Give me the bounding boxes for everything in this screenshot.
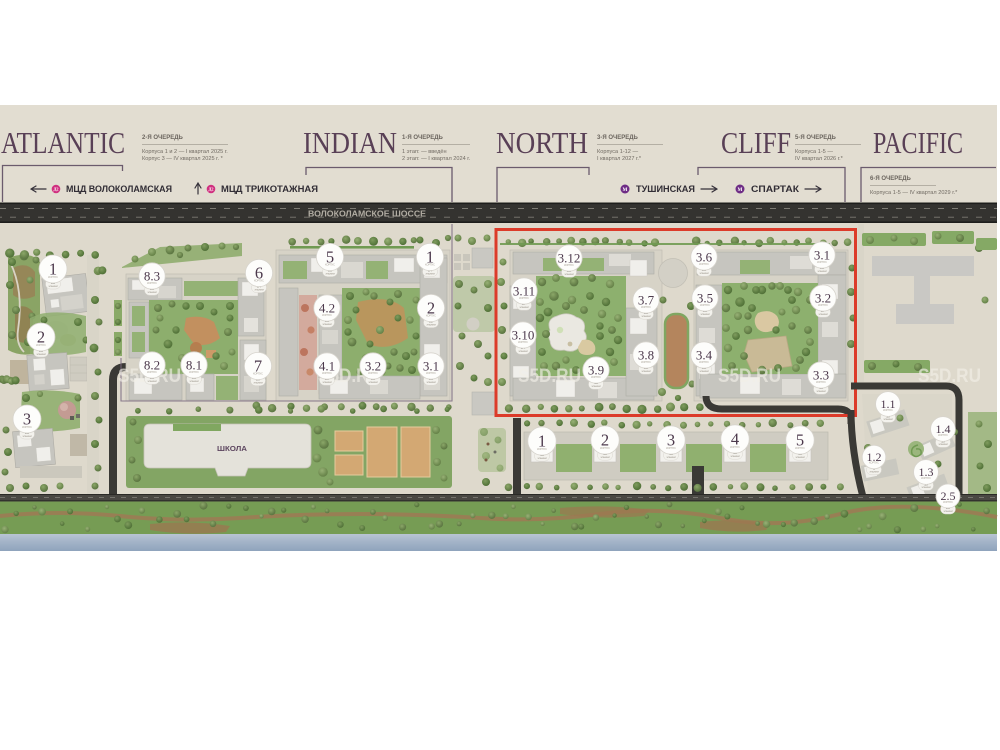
svg-text:КОРПУС: КОРПУС — [48, 276, 58, 279]
svg-text:ЭТАЖЕЙ: ЭТАЖЕЙ — [641, 370, 651, 373]
svg-text:КОРПУС: КОРПУС — [938, 434, 948, 437]
svg-text:ЭТАЖЕЙ: ЭТАЖЕЙ — [938, 443, 948, 446]
svg-text:S5D.RU: S5D.RU — [518, 365, 581, 387]
svg-text:ATLANTIC: ATLANTIC — [1, 125, 125, 160]
svg-text:S5D.RU: S5D.RU — [918, 365, 981, 387]
svg-text:СПАРТАК: СПАРТАК — [751, 184, 799, 194]
svg-text:КОРПУС: КОРПУС — [253, 372, 263, 375]
svg-text:МЦД ТРИКОТАЖНАЯ: МЦД ТРИКОТАЖНАЯ — [221, 184, 318, 194]
svg-text:ЭТАЖЕЙ: ЭТАЖЕЙ — [666, 456, 676, 459]
svg-text:PACIFIC: PACIFIC — [873, 125, 963, 160]
svg-text:ЭТАЖЕЙ: ЭТАЖЕЙ — [147, 291, 157, 294]
svg-text:КОРПУС: КОРПУС — [641, 306, 651, 309]
svg-text:ТУШИНСКАЯ: ТУШИНСКАЯ — [636, 184, 695, 194]
svg-text:КОРПУС: КОРПУС — [564, 264, 574, 267]
svg-text:КОРПУС: КОРПУС — [730, 446, 740, 449]
svg-text:6-Я ОЧЕРЕДЬ: 6-Я ОЧЕРЕДЬ — [870, 176, 911, 182]
svg-text:ЭТАЖЕЙ: ЭТАЖЕЙ — [426, 323, 436, 326]
svg-text:ЭТАЖЕЙ: ЭТАЖЕЙ — [869, 471, 879, 474]
svg-text:IV квартал 2026 г.*: IV квартал 2026 г.* — [795, 156, 844, 162]
svg-text:КОРПУС: КОРПУС — [921, 477, 931, 480]
svg-text:КОРПУС: КОРПУС — [325, 263, 335, 266]
svg-text:КОРПУС: КОРПУС — [818, 304, 828, 307]
svg-text:ЭТАЖЕЙ: ЭТАЖЕЙ — [943, 510, 953, 513]
svg-text:Корпус 3 — IV квартал 2025 г.: Корпус 3 — IV квартал 2025 г. * — [142, 156, 224, 162]
svg-text:ЭТАЖЕЙ: ЭТАЖЕЙ — [325, 272, 335, 275]
svg-text:ЭТАЖЕЙ: ЭТАЖЕЙ — [591, 385, 601, 388]
svg-text:ЭТАЖЕЙ: ЭТАЖЕЙ — [699, 272, 709, 275]
svg-text:ЭТАЖЕЙ: ЭТАЖЕЙ — [921, 486, 931, 489]
svg-text:Корпуса 1 и 2 — I квартал 2025: Корпуса 1 и 2 — I квартал 2025 г. — [142, 149, 228, 155]
svg-text:ЭТАЖЕЙ: ЭТАЖЕЙ — [147, 380, 157, 383]
svg-text:NORTH: NORTH — [496, 125, 588, 160]
svg-text:ЭТАЖЕЙ: ЭТАЖЕЙ — [816, 390, 826, 393]
svg-text:КОРПУС: КОРПУС — [817, 261, 827, 264]
svg-text:МЦД ВОЛОКОЛАМСКАЯ: МЦД ВОЛОКОЛАМСКАЯ — [66, 184, 172, 194]
svg-text:INDIAN: INDIAN — [303, 125, 397, 160]
svg-text:КОРПУС: КОРПУС — [816, 381, 826, 384]
svg-text:КОРПУС: КОРПУС — [425, 263, 435, 266]
svg-text:ЭТАЖЕЙ: ЭТАЖЕЙ — [818, 313, 828, 316]
svg-text:ЭТАЖЕЙ: ЭТАЖЕЙ — [795, 456, 805, 459]
svg-text:ЭТАЖЕЙ: ЭТАЖЕЙ — [600, 456, 610, 459]
svg-text:ЭТАЖЕЙ: ЭТАЖЕЙ — [48, 285, 58, 288]
svg-text:КОРПУС: КОРПУС — [795, 447, 805, 450]
svg-text:ЭТАЖЕЙ: ЭТАЖЕЙ — [537, 457, 547, 460]
svg-text:Д2: Д2 — [209, 187, 214, 192]
svg-text:ЭТАЖЕЙ: ЭТАЖЕЙ — [254, 288, 264, 291]
svg-text:ЭТАЖЕЙ: ЭТАЖЕЙ — [322, 381, 332, 384]
svg-text:КОРПУС: КОРПУС — [322, 314, 332, 317]
svg-text:ЭТАЖЕЙ: ЭТАЖЕЙ — [322, 323, 332, 326]
svg-text:ЭТАЖЕЙ: ЭТАЖЕЙ — [883, 418, 893, 421]
svg-text:ШКОЛА: ШКОЛА — [217, 444, 247, 453]
svg-text:КОРПУС: КОРПУС — [537, 448, 547, 451]
svg-text:КОРПУС: КОРПУС — [147, 282, 157, 285]
svg-text:CLIFF: CLIFF — [721, 125, 791, 160]
svg-text:S5D.RU: S5D.RU — [718, 365, 781, 387]
svg-text:КОРПУС: КОРПУС — [591, 376, 601, 379]
svg-text:ЭТАЖЕЙ: ЭТАЖЕЙ — [519, 306, 529, 309]
svg-text:ЭТАЖЕЙ: ЭТАЖЕЙ — [22, 435, 32, 438]
svg-text:ЭТАЖЕЙ: ЭТАЖЕЙ — [425, 272, 435, 275]
svg-text:Д2: Д2 — [54, 187, 59, 192]
svg-text:КОРПУС: КОРПУС — [518, 341, 528, 344]
svg-text:ЭТАЖЕЙ: ЭТАЖЕЙ — [426, 381, 436, 384]
svg-text:М: М — [738, 187, 743, 193]
svg-text:ЭТАЖЕЙ: ЭТАЖЕЙ — [518, 350, 528, 353]
svg-text:М: М — [623, 187, 628, 193]
svg-text:КОРПУС: КОРПУС — [426, 314, 436, 317]
svg-text:ЭТАЖЕЙ: ЭТАЖЕЙ — [817, 270, 827, 273]
svg-text:ЭТАЖЕЙ: ЭТАЖЕЙ — [368, 381, 378, 384]
svg-text:1-Я ОЧЕРЕДЬ: 1-Я ОЧЕРЕДЬ — [402, 135, 443, 141]
svg-text:ЭТАЖЕЙ: ЭТАЖЕЙ — [564, 273, 574, 276]
svg-text:ЭТАЖЕЙ: ЭТАЖЕЙ — [189, 380, 199, 383]
svg-text:Корпуса 1-5 —: Корпуса 1-5 — — [795, 149, 833, 155]
svg-text:КОРПУС: КОРПУС — [943, 501, 953, 504]
svg-text:3-Я ОЧЕРЕДЬ: 3-Я ОЧЕРЕДЬ — [597, 135, 638, 141]
svg-text:КОРПУС: КОРПУС — [147, 371, 157, 374]
svg-text:КОРПУС: КОРПУС — [426, 372, 436, 375]
svg-text:ЭТАЖЕЙ: ЭТАЖЕЙ — [253, 381, 263, 384]
svg-text:Корпуса 1-5 — IV квартал 2029: Корпуса 1-5 — IV квартал 2029 г.* — [870, 190, 958, 196]
svg-text:КОРПУС: КОРПУС — [883, 409, 893, 412]
svg-text:КОРПУС: КОРПУС — [641, 361, 651, 364]
svg-text:КОРПУС: КОРПУС — [666, 447, 676, 450]
svg-text:I квартал 2027 г.*: I квартал 2027 г.* — [597, 156, 642, 162]
svg-text:КОРПУС: КОРПУС — [699, 263, 709, 266]
svg-text:КОРПУС: КОРПУС — [254, 279, 264, 282]
svg-text:2 этап: — I квартал 2024 г.: 2 этап: — I квартал 2024 г. — [402, 156, 471, 162]
svg-text:КОРПУС: КОРПУС — [700, 304, 710, 307]
svg-text:5-Я ОЧЕРЕДЬ: 5-Я ОЧЕРЕДЬ — [795, 135, 836, 141]
svg-text:КОРПУС: КОРПУС — [600, 447, 610, 450]
svg-text:КОРПУС: КОРПУС — [22, 426, 32, 429]
svg-text:ЭТАЖЕЙ: ЭТАЖЕЙ — [730, 455, 740, 458]
svg-text:КОРПУС: КОРПУС — [189, 371, 199, 374]
svg-text:ЭТАЖЕЙ: ЭТАЖЕЙ — [700, 313, 710, 316]
svg-text:Корпуса 1-12 —: Корпуса 1-12 — — [597, 149, 638, 155]
svg-text:КОРПУС: КОРПУС — [519, 297, 529, 300]
svg-text:ЭТАЖЕЙ: ЭТАЖЕЙ — [641, 315, 651, 318]
svg-text:КОРПУС: КОРПУС — [36, 344, 46, 347]
svg-text:КОРПУС: КОРПУС — [699, 361, 709, 364]
svg-text:КОРПУС: КОРПУС — [322, 372, 332, 375]
svg-text:ЭТАЖЕЙ: ЭТАЖЕЙ — [36, 353, 46, 356]
svg-text:1 этап: — введён: 1 этап: — введён — [402, 149, 447, 155]
svg-text:ЭТАЖЕЙ: ЭТАЖЕЙ — [699, 370, 709, 373]
svg-text:ВОЛОКОЛАМСКОЕ ШОССЕ: ВОЛОКОЛАМСКОЕ ШОССЕ — [308, 210, 427, 219]
svg-text:КОРПУС: КОРПУС — [869, 462, 879, 465]
svg-text:КОРПУС: КОРПУС — [368, 372, 378, 375]
svg-text:2-Я ОЧЕРЕДЬ: 2-Я ОЧЕРЕДЬ — [142, 135, 183, 141]
